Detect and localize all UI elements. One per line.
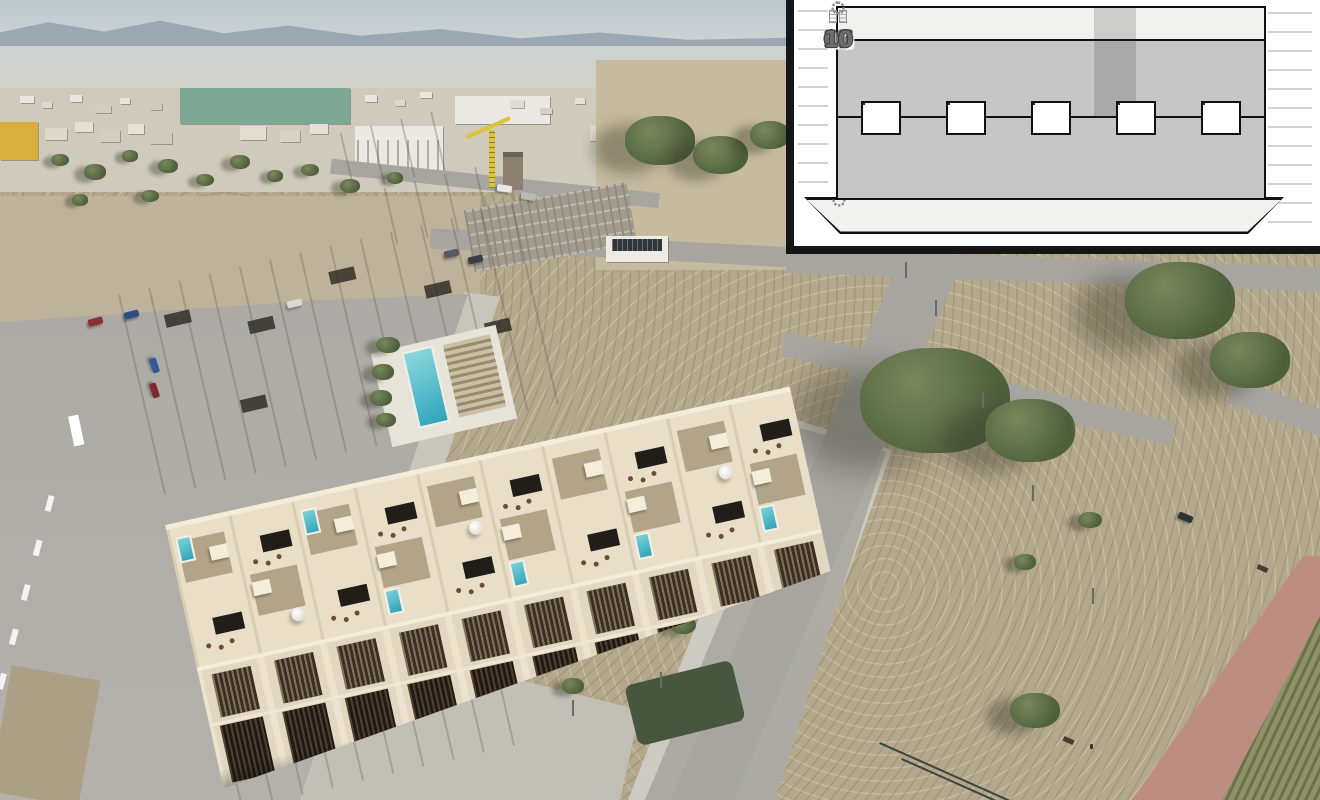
roof-furniture	[218, 644, 224, 650]
roof-pergola	[712, 501, 745, 524]
roof-furniture	[593, 561, 599, 567]
roof-furniture	[229, 638, 235, 644]
roof-furniture	[354, 610, 360, 616]
upper-window-slats	[336, 638, 385, 690]
roof-furniture	[718, 533, 724, 539]
roof-pergola	[634, 446, 667, 469]
plunge-pool	[758, 504, 779, 533]
town-block	[420, 92, 432, 98]
pool-pergola	[443, 334, 506, 417]
roof-furniture	[456, 588, 462, 594]
town-block	[510, 100, 524, 108]
top-patio-strip	[838, 8, 1264, 41]
roof-furniture	[401, 526, 407, 532]
warehouse-roof	[180, 88, 350, 124]
aerial-development-photo: 20191817161514131211 0102030405060708091…	[0, 0, 1320, 800]
roof-furniture	[503, 503, 509, 509]
town-block	[128, 124, 144, 134]
roof-furniture	[331, 615, 337, 621]
unit-number: 10	[824, 28, 853, 53]
solar-roof-building	[606, 236, 668, 262]
town-block	[310, 124, 328, 134]
roof-furniture	[253, 559, 259, 565]
roof-pergola	[759, 418, 792, 441]
roof-furniture	[765, 449, 771, 455]
pergola-frame	[328, 266, 356, 285]
roof-furniture	[729, 527, 735, 533]
roof-pergola	[260, 529, 293, 552]
roof-pergola	[385, 502, 418, 525]
town-block	[70, 95, 82, 102]
roof-furniture	[706, 532, 712, 538]
town-block	[42, 102, 52, 108]
upper-window-slats	[274, 652, 323, 704]
crane-mast	[489, 130, 495, 188]
roof-pergola	[337, 584, 370, 607]
roof-furniture	[640, 477, 646, 483]
pergola-frame	[164, 309, 192, 328]
upper-window-slats	[524, 597, 573, 649]
town-block	[395, 100, 405, 106]
yellow-building	[0, 122, 38, 160]
roof-furniture	[479, 582, 485, 588]
roof-umbrella	[290, 606, 307, 623]
roof-furniture	[378, 531, 384, 537]
town-block	[280, 130, 300, 142]
town-block	[120, 98, 130, 104]
town-block	[20, 96, 34, 103]
roof-pergola	[510, 474, 543, 497]
communal-pool	[401, 346, 450, 429]
roof-furniture	[468, 589, 474, 595]
plunge-pool	[508, 559, 529, 588]
town-block	[575, 98, 585, 104]
town-block	[540, 108, 552, 114]
town-block	[150, 132, 172, 144]
roof-pergola	[462, 556, 495, 579]
unit-rows: 20191817161514131211 0102030405060708091…	[838, 41, 1264, 198]
pergola-frame	[247, 316, 275, 335]
roof-furniture	[776, 443, 782, 449]
upper-window-slats	[711, 555, 760, 607]
porch-strip-outline	[804, 197, 1284, 234]
roof-furniture	[581, 560, 587, 566]
roof-furniture	[526, 498, 532, 504]
porch-cells	[839, 200, 1264, 232]
site-tower	[503, 152, 523, 190]
roof-furniture	[628, 476, 634, 482]
roof-pergola	[587, 528, 620, 551]
town-block	[240, 126, 266, 140]
roof-pergola	[212, 611, 245, 634]
building-footprint: 20191817161514131211 0102030405060708091…	[836, 6, 1266, 200]
roof-furniture	[752, 448, 758, 454]
pergola-frame	[240, 394, 268, 413]
porch-strip	[807, 200, 1282, 232]
site-plan-inset: 20191817161514131211 0102030405060708091…	[786, 0, 1320, 254]
roof-furniture	[604, 555, 610, 561]
upper-window-slats	[461, 610, 510, 662]
roof-furniture	[276, 554, 282, 560]
roof-furniture	[265, 560, 271, 566]
plunge-pool	[383, 587, 404, 616]
upper-window-slats	[649, 569, 698, 621]
solar-panels	[612, 239, 662, 251]
town-block	[45, 128, 67, 140]
plunge-pool	[633, 531, 654, 560]
upper-window-slats	[211, 666, 260, 718]
town-block	[100, 130, 120, 142]
town-block	[95, 105, 111, 113]
town-block	[150, 103, 162, 110]
roof-furniture	[515, 505, 521, 511]
roof-furniture	[651, 470, 657, 476]
roof-umbrella	[718, 464, 735, 481]
roof-furniture	[206, 643, 212, 649]
town-block	[75, 122, 93, 132]
lower-unit-row: 01020304050607080910	[838, 41, 1264, 118]
stairs-icon	[829, 10, 837, 23]
roof-umbrella	[468, 519, 485, 536]
pergola-frame	[424, 280, 452, 299]
roof-furniture	[390, 532, 396, 538]
upper-window-slats	[399, 624, 448, 676]
upper-window-slats	[586, 583, 635, 635]
town-block	[365, 95, 377, 102]
roof-furniture	[343, 617, 349, 623]
